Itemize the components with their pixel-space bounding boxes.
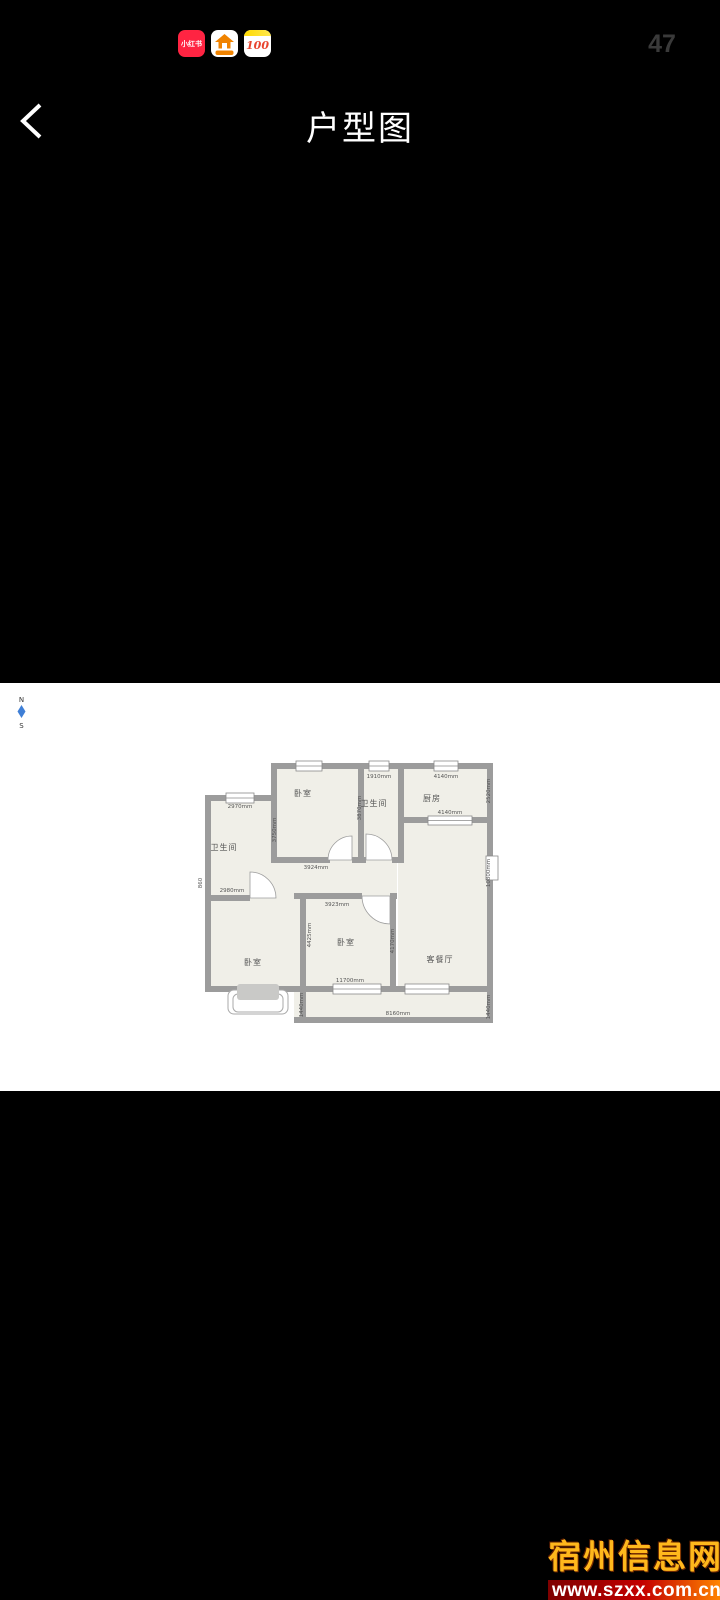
bay-window-icon bbox=[228, 984, 288, 1014]
compass-south-label: S bbox=[19, 722, 24, 730]
xiaohongshu-label: 小红书 bbox=[181, 39, 202, 49]
dim-bathroom-top-depth: 3870mm bbox=[357, 796, 363, 821]
status-bar: 小红书 100 47 bbox=[0, 0, 720, 70]
dim-balcony-width: 8160mm bbox=[386, 1011, 411, 1017]
watermark: 宿州信息网 www.szxx.com.cn bbox=[548, 1530, 720, 1600]
page-title: 户型图 bbox=[0, 101, 720, 150]
dim-bedroom-top-width: 3924mm bbox=[304, 865, 329, 871]
room-label-bathroom-left: 卫生间 bbox=[211, 842, 238, 852]
floorplan-viewer[interactable]: N S bbox=[0, 683, 720, 1091]
dim-bathroom-top-window: 1910mm bbox=[367, 774, 392, 780]
house-icon bbox=[211, 30, 238, 57]
room-label-kitchen: 厨房 bbox=[423, 793, 441, 803]
room-label-living-dining: 客餐厅 bbox=[427, 954, 454, 964]
header: 户型图 bbox=[0, 95, 720, 157]
100-app-icon: 100 bbox=[244, 30, 271, 57]
room-label-bedroom-middle: 卧室 bbox=[337, 937, 355, 947]
dim-kitchen-depth: 2520mm bbox=[486, 779, 492, 804]
compass: N S bbox=[18, 696, 26, 730]
notification-icons: 小红书 100 bbox=[178, 30, 271, 57]
dim-balcony-right: 1440mm bbox=[486, 995, 492, 1020]
dim-bedroom-middle-top: 3923mm bbox=[325, 902, 350, 908]
house-app-icon bbox=[211, 30, 238, 57]
dim-hall-left: 2980mm bbox=[220, 888, 245, 894]
dim-bathroom-left-window: 2970mm bbox=[228, 804, 253, 810]
watermark-url: www.szxx.com.cn bbox=[548, 1580, 720, 1600]
compass-needle-icon bbox=[18, 705, 26, 718]
watermark-site-name: 宿州信息网 bbox=[548, 1530, 720, 1578]
compass-north-label: N bbox=[19, 696, 24, 704]
dim-bedroom-middle-left: 4425mm bbox=[307, 923, 313, 948]
dim-left-wall: 860 bbox=[198, 877, 204, 888]
floorplan-image: N S bbox=[0, 683, 720, 1091]
dim-balcony-left: 1440mm bbox=[299, 993, 305, 1018]
phone-screen: 小红书 100 47 户型图 N bbox=[0, 0, 720, 1600]
room-label-bedroom-top: 卧室 bbox=[294, 788, 312, 798]
dim-bedroom-top-depth: 3750mm bbox=[272, 818, 278, 843]
room-label-bathroom-top: 卫生间 bbox=[361, 798, 388, 808]
dim-living-depth: 10800mm bbox=[486, 859, 492, 887]
dim-kitchen-window: 4140mm bbox=[434, 774, 459, 780]
dim-bedroom-middle-window: 11700mm bbox=[336, 978, 364, 984]
dim-bedroom-middle-right: 4170mm bbox=[390, 929, 396, 954]
100-label: 100 bbox=[246, 39, 269, 52]
xiaohongshu-app-icon: 小红书 bbox=[178, 30, 205, 57]
yellow-strip bbox=[244, 30, 271, 36]
room-label-bedroom-left: 卧室 bbox=[244, 957, 262, 967]
status-count: 47 bbox=[632, 30, 692, 59]
dim-kitchen-passthrough: 4140mm bbox=[438, 810, 463, 816]
